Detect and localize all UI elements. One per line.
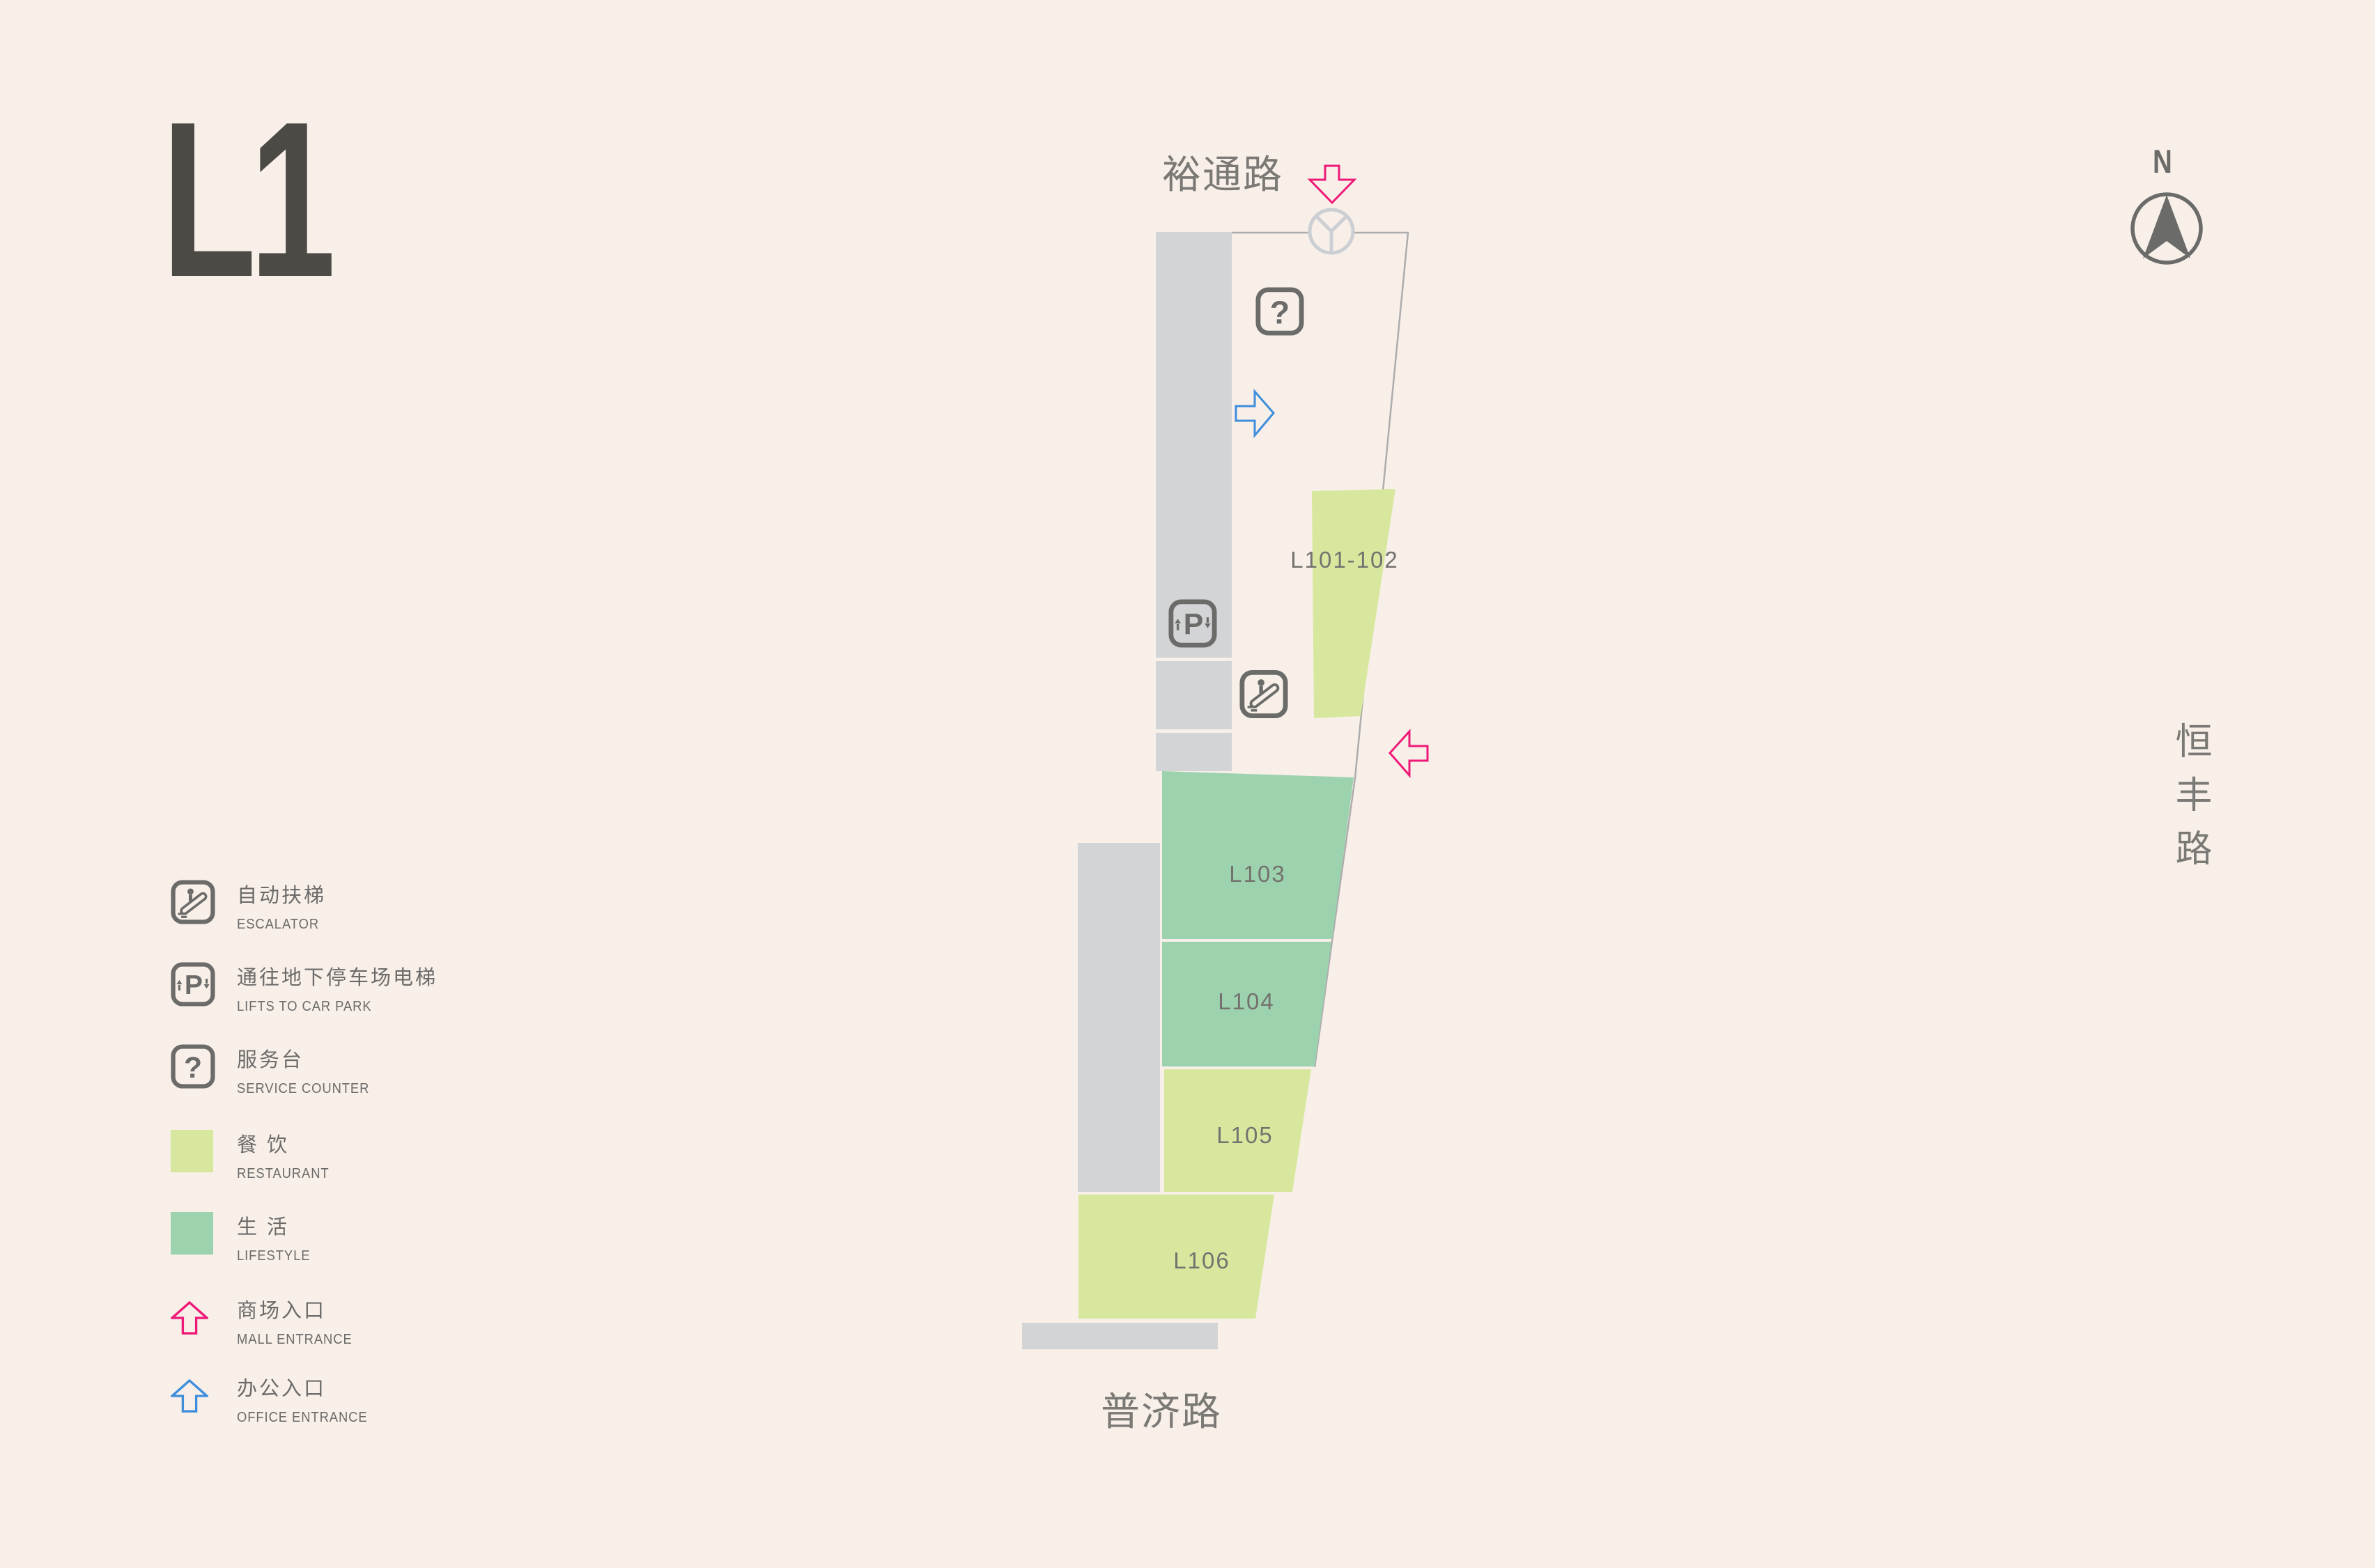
escalator-legend-icon	[171, 879, 215, 925]
corridor-block-left	[1078, 843, 1160, 1192]
legend-mall-entrance-zh: 商场入口	[237, 1294, 362, 1324]
sidewalk-bar-bottom	[1022, 1323, 1218, 1349]
unit-label-L105: L105	[1216, 1122, 1273, 1148]
revolving-door-icon	[1310, 210, 1353, 253]
unit-label-L104: L104	[1218, 988, 1274, 1014]
legend-restaurant-en: RESTAURANT	[237, 1166, 330, 1182]
service-counter-icon	[1258, 290, 1301, 333]
legend-lifts-en: LIFTS TO CAR PARK	[237, 999, 421, 1015]
legend-lifestyle-en: LIFESTYLE	[237, 1248, 310, 1264]
legend-service-zh: 服务台	[237, 1043, 381, 1073]
legend-escalator-zh: 自动扶梯	[237, 879, 326, 908]
car-park-lift-legend-icon	[171, 961, 215, 1007]
mall-entrance-arrow-icon	[171, 1301, 208, 1335]
mall-entrance-arrow-top	[1310, 166, 1354, 203]
unit-region-L103	[1162, 771, 1354, 939]
legend-office-entrance-en: OFFICE ENTRANCE	[237, 1410, 368, 1426]
legend-lifts-zh: 通往地下停车场电梯	[237, 961, 438, 991]
mall-entrance-arrow-right	[1390, 731, 1428, 775]
legend-lifestyle-zh: 生 活	[237, 1211, 317, 1240]
office-entrance-arrow-icon	[171, 1379, 208, 1413]
legend-office-entrance-zh: 办公入口	[237, 1372, 379, 1402]
legend-service-en: SERVICE COUNTER	[237, 1081, 369, 1097]
escalator-icon	[1242, 672, 1285, 715]
corridor-strip-lower	[1156, 733, 1232, 771]
corridor-strip-upper	[1156, 232, 1232, 658]
unit-label-L103: L103	[1229, 861, 1285, 887]
office-entrance-arrow	[1236, 391, 1274, 435]
service-counter-legend-icon	[171, 1043, 215, 1089]
floor-plan-page: ? P L1	[0, 0, 2375, 1568]
legend-restaurant-zh: 餐 饮	[237, 1128, 337, 1158]
legend-escalator-en: ESCALATOR	[237, 917, 319, 933]
corridor-strip-middle	[1156, 661, 1232, 729]
unit-region-L101-102	[1312, 489, 1395, 718]
unit-label-L106: L106	[1173, 1248, 1230, 1273]
legend-mall-entrance-en: MALL ENTRANCE	[237, 1332, 353, 1348]
lifestyle-color-swatch	[171, 1212, 213, 1255]
unit-label-L101-102: L101-102	[1290, 547, 1398, 573]
restaurant-color-swatch	[171, 1130, 213, 1172]
